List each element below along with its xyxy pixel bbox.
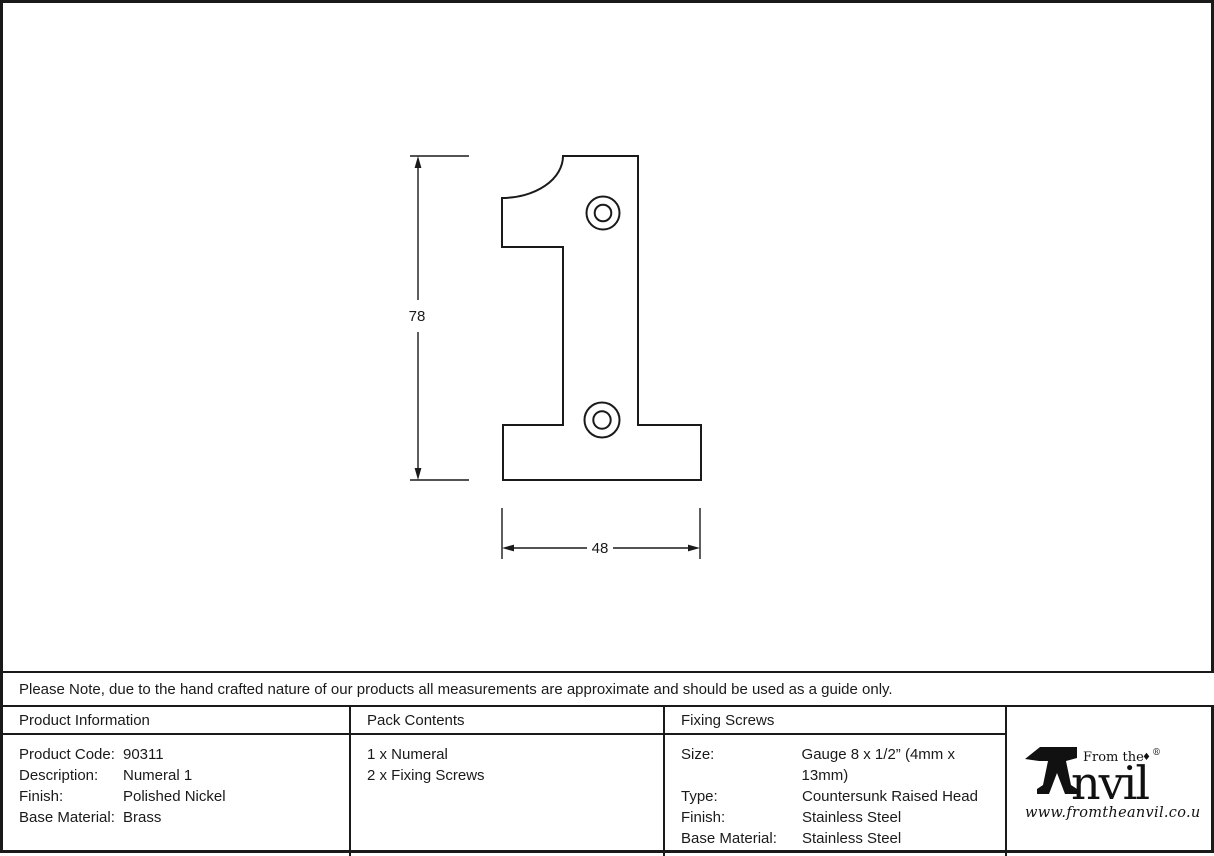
spec-table: Product Information Product Code: 90311 … (3, 707, 1214, 856)
spec-label: Description: (19, 765, 123, 786)
spec-label: Size: (681, 744, 802, 786)
spec-value: Polished Nickel (123, 786, 226, 807)
product-information-column: Product Information Product Code: 90311 … (3, 707, 351, 856)
from-the-anvil-logo: From the ♦ nvil ® www.fromtheanvil.co.uk (1025, 742, 1200, 822)
measurement-note-text: Please Note, due to the hand crafted nat… (19, 681, 893, 698)
table-row: Base Material: Brass (19, 807, 349, 828)
spec-value: Brass (123, 807, 161, 828)
measurement-note-bar: Please Note, due to the hand crafted nat… (3, 671, 1214, 707)
spec-value: Countersunk Raised Head (802, 786, 978, 807)
spec-value: Gauge 8 x 1/2” (4mm x 13mm) (802, 744, 1005, 786)
pack-contents-header: Pack Contents (351, 707, 663, 735)
fixing-screws-body: Size: Gauge 8 x 1/2” (4mm x 13mm) Type: … (665, 735, 1005, 856)
list-item: 2 x Fixing Screws (367, 765, 663, 786)
table-row: Finish: Stainless Steel (681, 807, 1005, 828)
table-row: Description: Numeral 1 (19, 765, 349, 786)
product-information-header: Product Information (3, 707, 349, 735)
spec-label: Type: (681, 786, 802, 807)
anvil-icon (1025, 747, 1077, 794)
list-item: 1 x Numeral (367, 744, 663, 765)
table-row: Size: Gauge 8 x 1/2” (4mm x 13mm) (681, 744, 1005, 786)
height-dimension-label: 78 (409, 308, 426, 325)
spec-label: Finish: (19, 786, 123, 807)
spec-value: Stainless Steel (802, 828, 901, 849)
spec-label: Base Material: (19, 807, 123, 828)
table-row: Finish: Polished Nickel (19, 786, 349, 807)
screw-hole-top (587, 197, 620, 230)
width-dimension-label: 48 (592, 540, 609, 557)
table-row: Base Material: Stainless Steel (681, 828, 1005, 849)
spec-label: Product Code: (19, 744, 123, 765)
pack-contents-column: Pack Contents 1 x Numeral 2 x Fixing Scr… (351, 707, 665, 856)
width-dimension: 48 (502, 508, 700, 568)
fixing-screws-header-label: Fixing Screws (681, 712, 774, 729)
pack-contents-body: 1 x Numeral 2 x Fixing Screws (351, 735, 663, 856)
logo-anvil-text: nvil (1071, 756, 1149, 810)
height-dimension: 78 (409, 156, 469, 480)
registered-trademark-icon: ® (1152, 748, 1161, 758)
spec-sheet-page: 78 48 Please Note, due to the hand craft… (0, 0, 1214, 853)
technical-drawing-area: 78 48 (3, 3, 1214, 671)
fixing-screws-column: Fixing Screws Size: Gauge 8 x 1/2” (4mm … (665, 707, 1007, 856)
pack-contents-header-label: Pack Contents (367, 712, 465, 729)
numeral-1-technical-drawing: 78 48 (398, 143, 713, 568)
table-row: Type: Countersunk Raised Head (681, 786, 1005, 807)
product-information-header-label: Product Information (19, 712, 150, 729)
logo-website-url: www.fromtheanvil.co.uk (1025, 805, 1200, 821)
fixing-screws-header: Fixing Screws (665, 707, 1005, 735)
brand-logo-cell: From the ♦ nvil ® www.fromtheanvil.co.uk (1007, 707, 1214, 856)
spec-label: Base Material: (681, 828, 802, 849)
screw-hole-bottom (585, 403, 620, 438)
product-information-body: Product Code: 90311 Description: Numeral… (3, 735, 349, 856)
spec-label: Finish: (681, 807, 802, 828)
spec-value: Stainless Steel (802, 807, 901, 828)
table-row: Product Code: 90311 (19, 744, 349, 765)
spec-value: 90311 (123, 744, 164, 765)
spec-value: Numeral 1 (123, 765, 192, 786)
